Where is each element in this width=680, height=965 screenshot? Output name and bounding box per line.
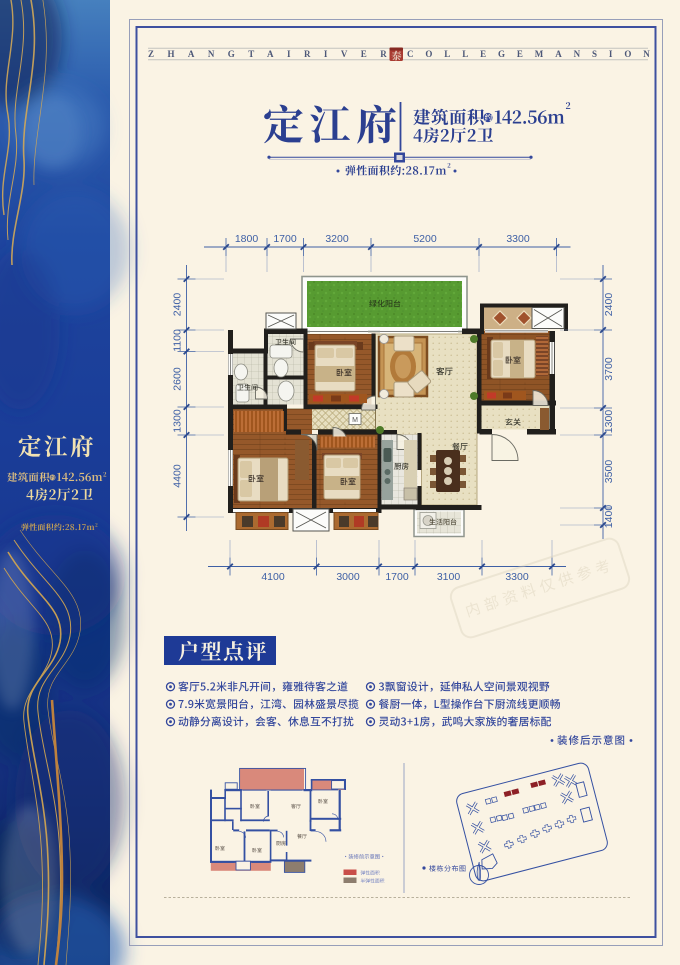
svg-text:1400: 1400 — [603, 505, 615, 529]
svg-text:3500: 3500 — [603, 460, 615, 484]
svg-text:4100: 4100 — [261, 571, 285, 583]
svg-text:COLLEGEMANSION: COLLEGEMANSION — [407, 49, 662, 59]
svg-text:3200: 3200 — [325, 233, 349, 245]
svg-text:2600: 2600 — [172, 367, 184, 391]
svg-text:4400: 4400 — [172, 464, 184, 488]
svg-text:1700: 1700 — [273, 233, 297, 245]
svg-text:3700: 3700 — [603, 357, 615, 381]
svg-text:1300: 1300 — [603, 410, 615, 434]
svg-text:5200: 5200 — [413, 233, 437, 245]
svg-text:3300: 3300 — [506, 233, 530, 245]
svg-text:M: M — [352, 417, 358, 424]
svg-text:2400: 2400 — [603, 293, 615, 317]
svg-text:3000: 3000 — [336, 571, 360, 583]
svg-text:1100: 1100 — [172, 329, 184, 352]
svg-text:1700: 1700 — [385, 571, 409, 583]
svg-text:3300: 3300 — [505, 571, 529, 583]
svg-text:ZHANGTAIRIVER: ZHANGTAIRIVER — [148, 49, 400, 59]
svg-text:2400: 2400 — [172, 293, 184, 317]
svg-text:1300: 1300 — [172, 409, 184, 433]
svg-text:1800: 1800 — [235, 233, 259, 245]
svg-text:3100: 3100 — [437, 571, 461, 583]
